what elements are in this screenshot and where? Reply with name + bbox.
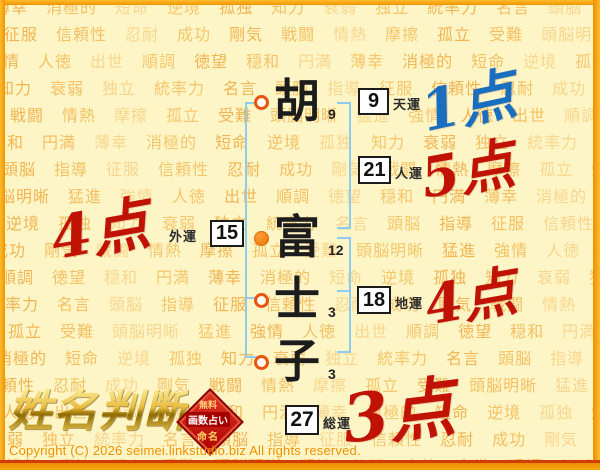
gaiun-score: 4点: [43, 176, 154, 276]
site-logo-title: 姓名判断: [8, 384, 188, 440]
name-char: 士: [274, 274, 320, 326]
badge-line2: 画数占い: [186, 412, 230, 427]
chiun-label: 地運: [395, 293, 423, 312]
stroke-count: 3: [328, 366, 336, 382]
tenun-value-box: 9: [358, 88, 389, 115]
copyright-text: Copyright (C) 2026 seimei.linkstudio.biz…: [9, 443, 361, 458]
seimei-handan-result-page: 薄幸 消極的 短命 逆境 孤独 知力 衰弱 独立 統率力 名言 頭脳 指導 征服…: [0, 0, 600, 470]
name-char-row-4: 子 3: [252, 336, 352, 390]
gaiun-value-box: 15: [210, 220, 244, 247]
char-marker-circle-icon: [254, 95, 269, 110]
stroke-count: 9: [328, 106, 336, 122]
souun-value-box: 27: [285, 405, 319, 435]
frame-border-top: [0, 0, 600, 5]
site-logo[interactable]: 姓名判断: [8, 384, 188, 440]
frame-border-bottom: [0, 460, 600, 470]
jinun-score: 5点: [414, 119, 520, 214]
name-char: 胡: [274, 76, 320, 128]
frame-border-right: [593, 0, 600, 470]
tenun-label: 天運: [393, 94, 421, 113]
chiun-value-box: 18: [357, 286, 391, 314]
frame-border-left: [0, 0, 5, 470]
watermark-row: 征服 信頼性 忍耐 成功 剛気 戦闘 情熱 摩擦 孤立 受難 頭脳明晰 猛進: [4, 22, 600, 49]
stroke-count: 12: [328, 242, 344, 258]
badge-line3: 命名: [197, 428, 219, 443]
name-char: 子: [274, 336, 320, 388]
name-char: 富: [274, 212, 320, 264]
char-marker-circle-icon: [254, 355, 269, 370]
jinun-value-box: 21: [358, 156, 391, 184]
bracket-line: [245, 102, 247, 358]
char-marker-circle-filled-icon: [254, 231, 269, 246]
name-char-row-3: 士 3: [252, 274, 352, 328]
chiun-score: 4点: [418, 247, 522, 341]
stroke-count: 3: [328, 304, 336, 320]
gaiun-label: 外運: [169, 226, 197, 245]
name-char-row-2: 富 12: [252, 212, 352, 266]
char-marker-circle-icon: [254, 293, 269, 308]
badge-line1: 無料: [199, 398, 217, 411]
name-char-row-1: 胡 9: [252, 76, 352, 130]
